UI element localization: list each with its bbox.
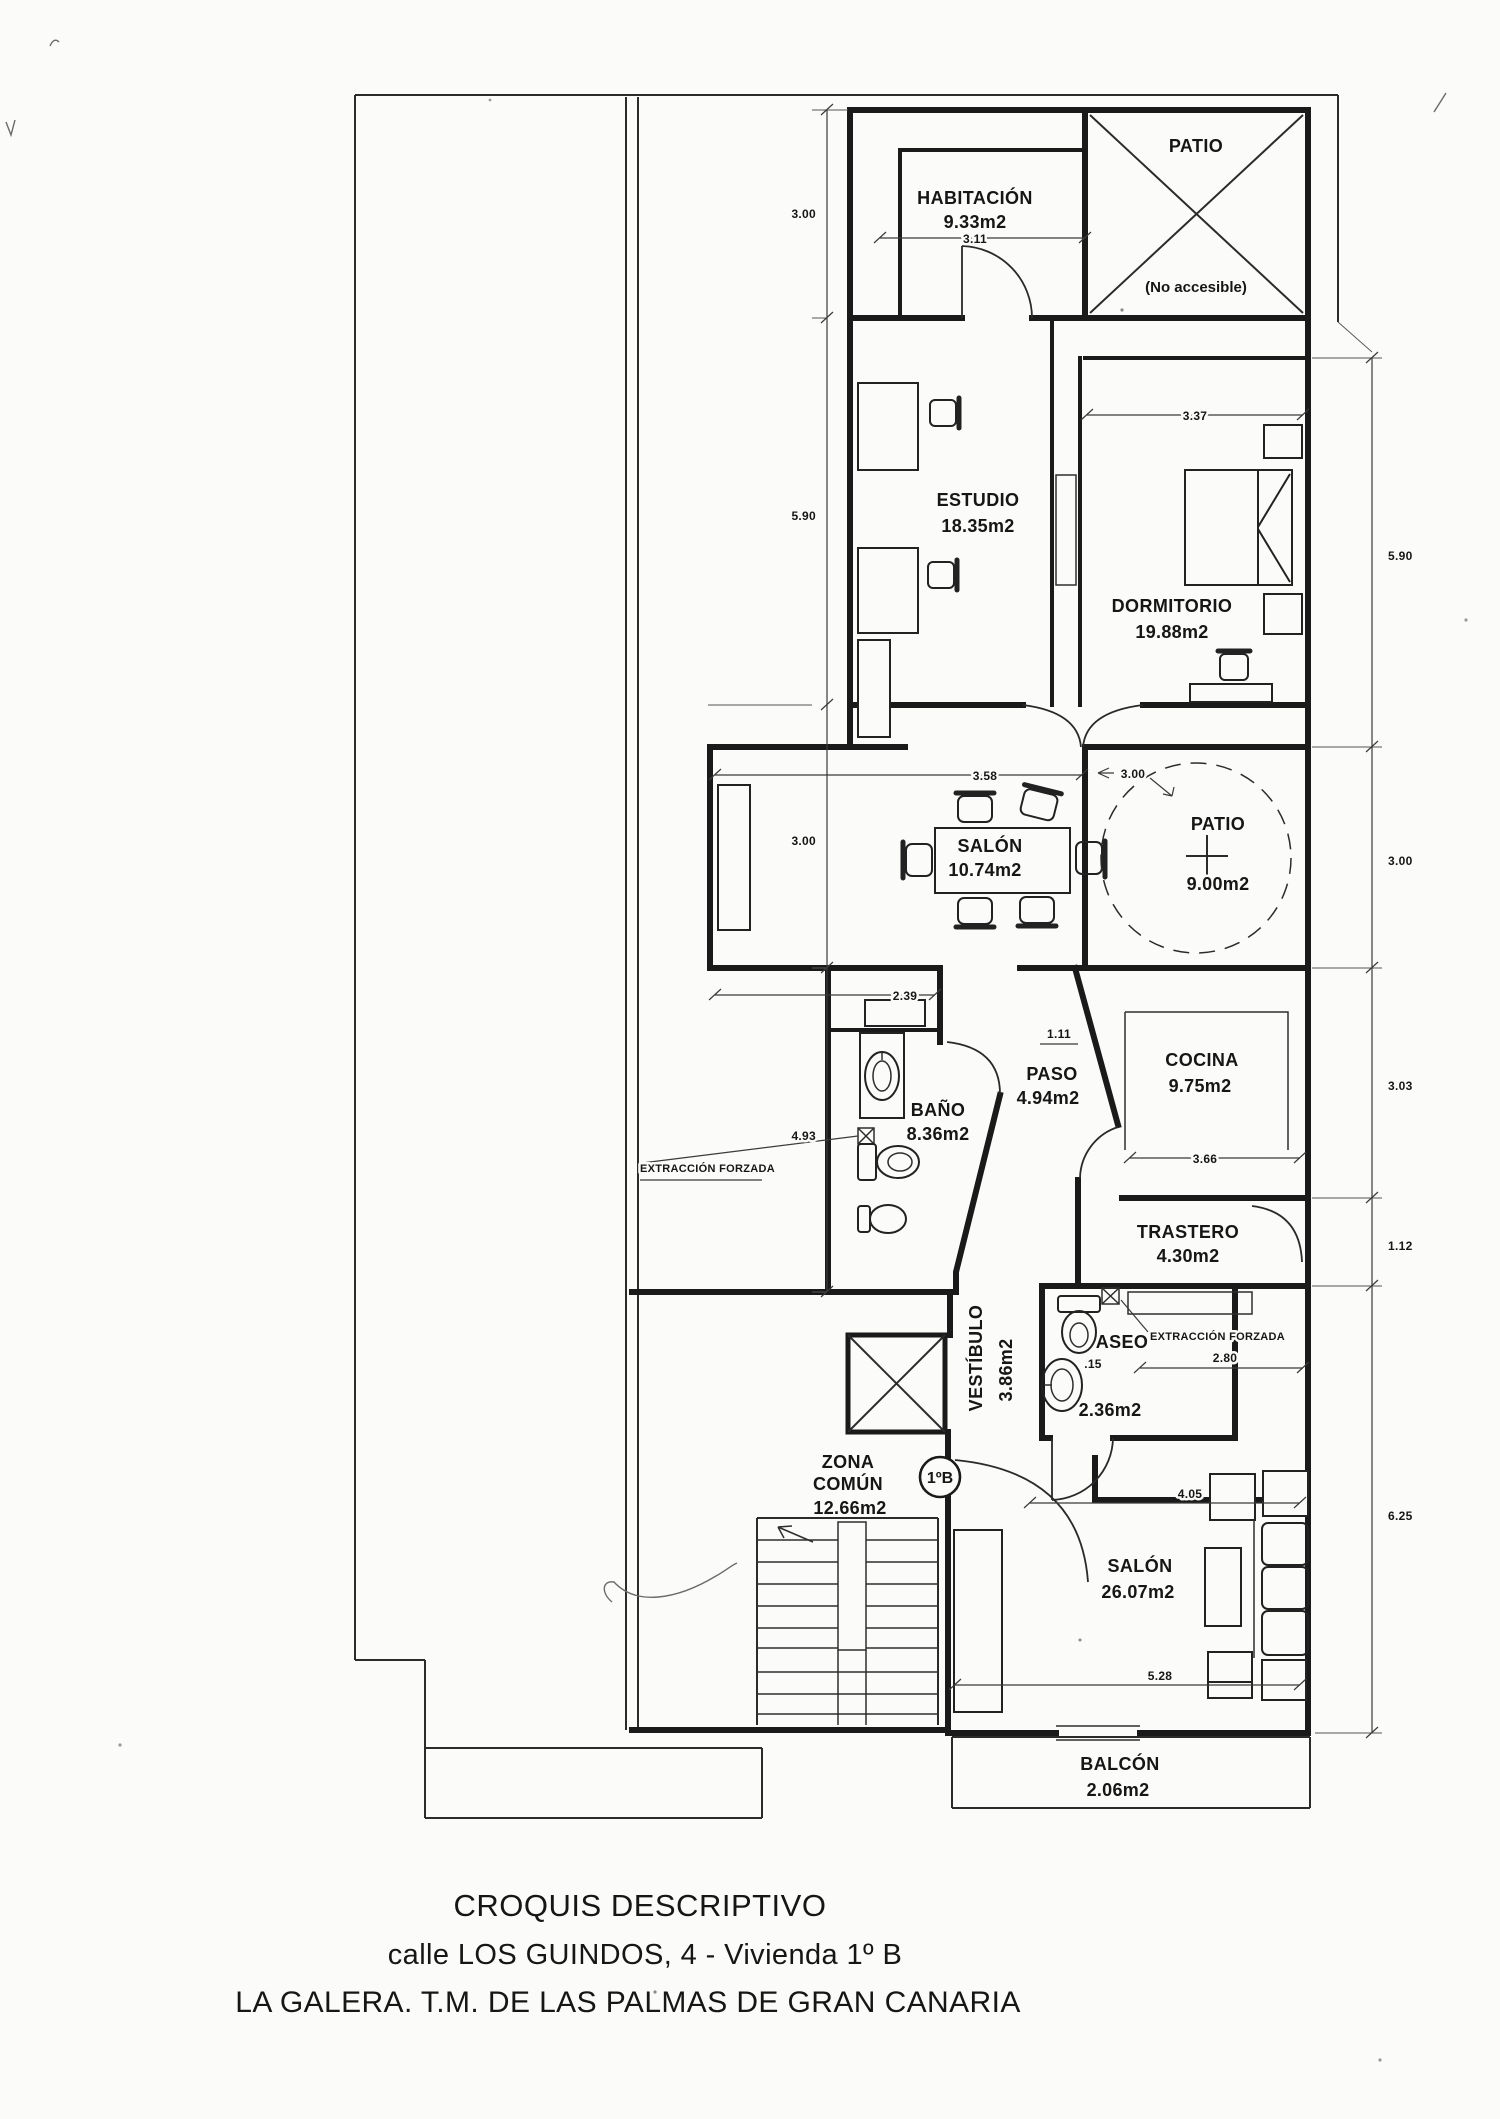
label-salon1: SALÓN [958, 835, 1023, 856]
label-dormitorio: DORMITORIO [1112, 596, 1233, 616]
dim-left-2: 5.90 [791, 509, 816, 523]
dim-habitacion: 3.11 [963, 232, 987, 246]
desk [858, 548, 918, 633]
area-zona-comun: 12.66m2 [813, 1498, 886, 1518]
label-zona-comun-1: ZONA [822, 1452, 875, 1472]
area-salon1: 10.74m2 [948, 860, 1021, 880]
title-line-3: LA GALERA. T.M. DE LAS PALMAS DE GRAN CA… [235, 1986, 1020, 2019]
dim-salon2b: 5.28 [1148, 1669, 1173, 1683]
desk [1190, 684, 1272, 702]
unit-badge-label: 1ºB [927, 1470, 953, 1487]
sideboard [718, 785, 750, 930]
scan-artifacts [6, 40, 1468, 2061]
area-bano: 8.36m2 [907, 1124, 970, 1144]
nightstand [1264, 594, 1302, 634]
door-arc-dormitorio [1083, 705, 1143, 747]
chair [1017, 785, 1061, 822]
dim-left-3: 3.00 [791, 834, 816, 848]
area-paso: 4.94m2 [1017, 1088, 1080, 1108]
dim-paso: 1.11 [1047, 1027, 1071, 1041]
patio-plus-icon [1186, 835, 1228, 877]
elevator-icon [848, 1335, 945, 1432]
dim-salon1: 3.58 [973, 769, 998, 783]
title-line-1: CROQUIS DESCRIPTIVO [454, 1888, 827, 1923]
area-patio2: 9.00m2 [1187, 874, 1250, 894]
leader-line [1121, 1300, 1148, 1332]
title-block: CROQUIS DESCRIPTIVO calle LOS GUINDOS, 4… [235, 1888, 1020, 2019]
bidet-icon [858, 1205, 906, 1233]
chair [1018, 897, 1056, 926]
dim-right-4: 1.12 [1388, 1239, 1413, 1253]
chair [903, 842, 932, 878]
desk-chair [928, 560, 957, 590]
patio-interior [1101, 763, 1291, 953]
door-arc-trastero [1252, 1206, 1302, 1262]
door-arc-habitacion [962, 246, 1032, 318]
label-patio2: PATIO [1191, 814, 1245, 834]
dim-dormitorio: 3.37 [1183, 409, 1208, 423]
area-trastero: 4.30m2 [1157, 1246, 1220, 1266]
nightstand [1264, 425, 1302, 458]
fan-icon [858, 1128, 874, 1144]
fan-icon [1102, 1288, 1119, 1304]
area-estudio: 18.35m2 [941, 516, 1014, 536]
dim-cocina: 3.66 [1193, 1152, 1218, 1166]
sink-icon [1042, 1359, 1082, 1411]
bed [1185, 470, 1292, 585]
door-arc-aseo [1052, 1438, 1113, 1500]
furniture-salon-comedor [718, 785, 1105, 930]
title-line-2: calle LOS GUINDOS, 4 - Vivienda 1º B [388, 1939, 902, 1971]
floor-plan-svg: 3.00 5.90 3.00 4.93 5.90 3.00 3.03 1.12 … [0, 0, 1500, 2119]
area-dormitorio: 19.88m2 [1135, 622, 1208, 642]
label-habitacion: HABITACIÓN [917, 187, 1033, 208]
side-table [1262, 1660, 1306, 1700]
desk-chair [930, 398, 959, 428]
dim-aseo: .15 [1084, 1357, 1102, 1371]
unit-badge: 1ºB [920, 1457, 960, 1497]
toilet-icon [858, 1144, 919, 1180]
label-cocina: COCINA [1165, 1050, 1238, 1070]
scanned-floor-plan-page: 3.00 5.90 3.00 4.93 5.90 3.00 3.03 1.12 … [0, 0, 1500, 2119]
dim-right-5: 6.25 [1388, 1509, 1413, 1523]
outer-boundary [355, 95, 1338, 1818]
label-trastero: TRASTERO [1137, 1222, 1239, 1242]
sink-icon [860, 1033, 904, 1118]
area-salon2: 26.07m2 [1101, 1582, 1174, 1602]
chair [956, 793, 994, 822]
door-arc-cocina [1080, 1127, 1118, 1178]
label-salon2: SALÓN [1108, 1555, 1173, 1576]
note-extraccion-aseo: EXTRACCIÓN FORZADA [1150, 1330, 1285, 1343]
armchair [1208, 1652, 1252, 1698]
coffee-table [1205, 1548, 1241, 1626]
area-vestibulo: 3.86m2 [996, 1339, 1016, 1402]
label-aseo: ASEO [1096, 1332, 1149, 1352]
shelf [858, 640, 890, 737]
dim-right-2: 3.00 [1388, 854, 1413, 868]
area-balcon: 2.06m2 [1087, 1780, 1150, 1800]
label-vestibulo: VESTÍBULO [965, 1305, 986, 1412]
furniture-dormitorio [1185, 425, 1302, 702]
chair [956, 898, 994, 927]
door-arc-bano [947, 1042, 1000, 1094]
label-balcon: BALCÓN [1080, 1753, 1159, 1774]
label-patio-top: PATIO [1169, 136, 1223, 156]
door-arc-estudio [1023, 705, 1081, 747]
dim-salon2a: 4.05 [1178, 1487, 1203, 1501]
label-zona-comun-2: COMÚN [813, 1473, 883, 1494]
desk [858, 383, 918, 470]
dim-right-3: 3.03 [1388, 1079, 1413, 1093]
area-cocina: 9.75m2 [1169, 1076, 1232, 1096]
note-extraccion-bano: EXTRACCIÓN FORZADA [640, 1162, 775, 1175]
area-habitacion: 9.33m2 [944, 212, 1007, 232]
dim-right-1: 5.90 [1388, 549, 1413, 563]
dim-bano: 2.39 [893, 989, 918, 1003]
label-bano: BAÑO [911, 1099, 966, 1120]
area-aseo: 2.36m2 [1079, 1400, 1142, 1420]
dim-nook: 2.80 [1213, 1351, 1238, 1365]
fixtures-bano [640, 1000, 925, 1233]
armchair [1263, 1471, 1308, 1516]
label-estudio: ESTUDIO [937, 490, 1020, 510]
stairs [757, 1518, 938, 1725]
sofa [1254, 1520, 1308, 1658]
armchair [1210, 1474, 1255, 1520]
dim-left-1: 3.00 [791, 207, 816, 221]
chair [1218, 651, 1250, 680]
label-paso: PASO [1026, 1064, 1077, 1084]
cabinet [865, 1000, 925, 1026]
furniture-estudio [858, 383, 959, 737]
note-no-accesible: (No accesible) [1145, 279, 1247, 296]
divider-closet [1056, 475, 1076, 585]
toilet-icon [1058, 1296, 1100, 1353]
dim-left-4: 4.93 [791, 1129, 816, 1143]
dim-patio: 3.00 [1121, 767, 1146, 781]
